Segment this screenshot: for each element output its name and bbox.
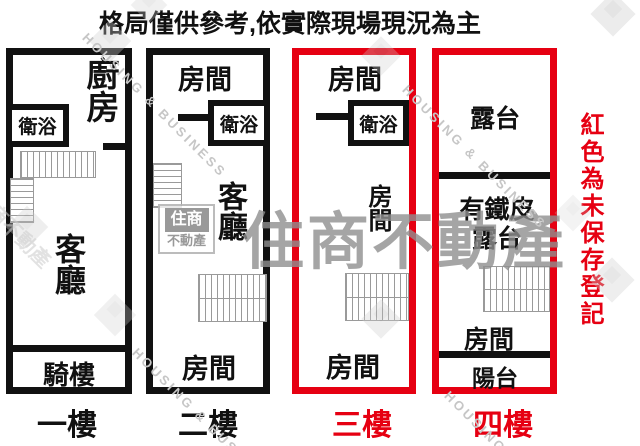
interior-wall: [178, 114, 208, 121]
interior-wall: [316, 113, 348, 120]
stairs-f2-mid: [198, 274, 267, 322]
interior-wall: [103, 143, 132, 150]
room-label-f3-top: 房間: [328, 58, 382, 97]
arcade-label: 騎樓: [43, 355, 95, 392]
floor-label-3: 三樓: [332, 400, 392, 444]
disclaimer-title: 格局僅供參考,依實際現場現況為主: [99, 4, 481, 40]
bathroom-box-f3: 衛浴: [348, 100, 409, 146]
balcony-label: 陽台: [472, 359, 518, 393]
room-label-f3-bottom: 房間: [326, 346, 380, 385]
living-room-label-f2: 客廳: [213, 181, 246, 241]
stairs-f2-left: [153, 163, 182, 208]
room-label-f3-mid: 房間: [364, 184, 391, 232]
unregistered-note: 紅色為未保存登記: [572, 112, 607, 328]
floor-plan-image: 格局僅供參考,依實際現場現況為主 廚房 衛浴 客廳 騎樓 一樓 房間 衛浴 客廳…: [0, 0, 640, 446]
stairs-f1-upper: [20, 151, 96, 178]
bathroom-box-f1: 衛浴: [6, 104, 69, 147]
stairs-f4: [483, 266, 550, 312]
floor-label-1: 一樓: [37, 400, 97, 444]
floor-label-2: 二樓: [178, 400, 238, 444]
interior-wall: [439, 351, 550, 358]
floor-label-4: 四樓: [473, 400, 533, 444]
stairs-f1-lower: [10, 178, 34, 223]
room-label-f2-top: 房間: [178, 58, 232, 97]
terrace-label: 露台: [470, 99, 520, 135]
stairs-f3: [345, 273, 409, 321]
living-room-label-f1: 客廳: [51, 233, 84, 295]
kitchen-label: 廚房: [83, 57, 118, 123]
bathroom-box-f2: 衛浴: [208, 100, 270, 146]
interior-wall: [6, 345, 132, 352]
room-label-f2-bottom: 房間: [182, 347, 236, 386]
brand-diamond-icon: [590, 0, 635, 37]
interior-wall: [439, 172, 550, 179]
metal-roof-terrace-label: 有鐵皮 露台: [459, 196, 534, 254]
